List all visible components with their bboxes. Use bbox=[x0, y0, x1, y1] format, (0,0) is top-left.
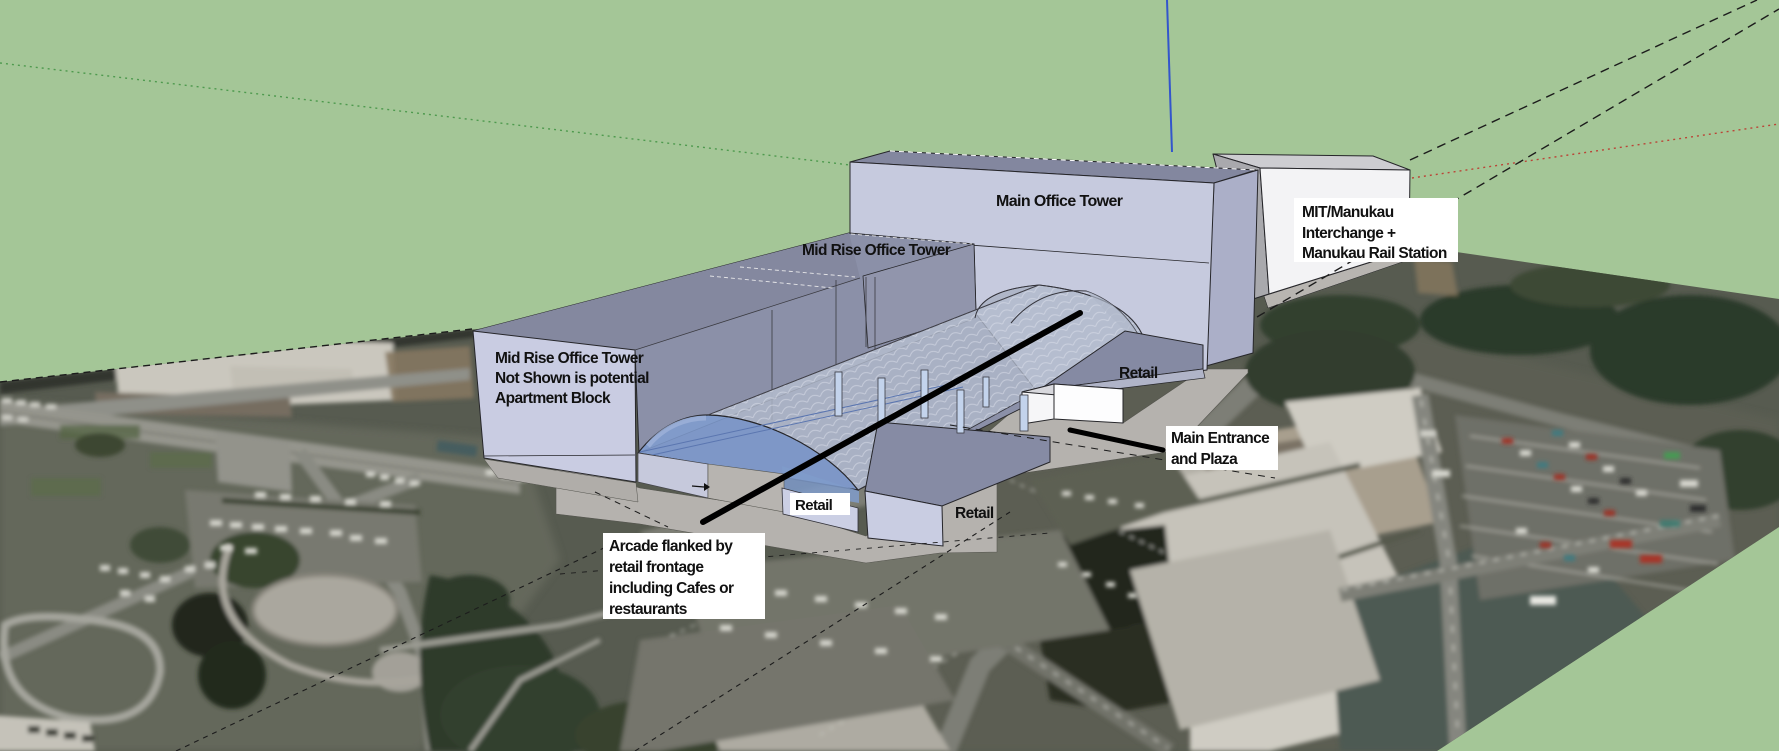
svg-text:restaurants: restaurants bbox=[609, 601, 687, 618]
svg-text:Apartment Block: Apartment Block bbox=[495, 390, 611, 407]
svg-text:Retail: Retail bbox=[1119, 365, 1158, 382]
svg-text:Mid Rise Office Tower: Mid Rise Office Tower bbox=[495, 350, 644, 367]
svg-text:retail frontage: retail frontage bbox=[609, 559, 704, 576]
svg-text:Retail: Retail bbox=[955, 505, 994, 522]
svg-text:including Cafes or: including Cafes or bbox=[609, 580, 734, 597]
svg-text:Main Entrance: Main Entrance bbox=[1171, 430, 1270, 447]
svg-text:and Plaza: and Plaza bbox=[1171, 451, 1238, 468]
svg-text:Main Office Tower: Main Office Tower bbox=[996, 193, 1123, 210]
svg-text:Arcade flanked by: Arcade flanked by bbox=[609, 538, 733, 555]
svg-text:Not Shown is potential: Not Shown is potential bbox=[495, 370, 649, 387]
svg-text:Retail: Retail bbox=[795, 497, 833, 514]
svg-text:Manukau Rail Station: Manukau Rail Station bbox=[1302, 245, 1447, 262]
svg-text:Interchange +: Interchange + bbox=[1302, 225, 1396, 242]
svg-text:MIT/Manukau: MIT/Manukau bbox=[1302, 204, 1394, 221]
svg-text:Mid Rise Office Tower: Mid Rise Office Tower bbox=[802, 242, 951, 259]
